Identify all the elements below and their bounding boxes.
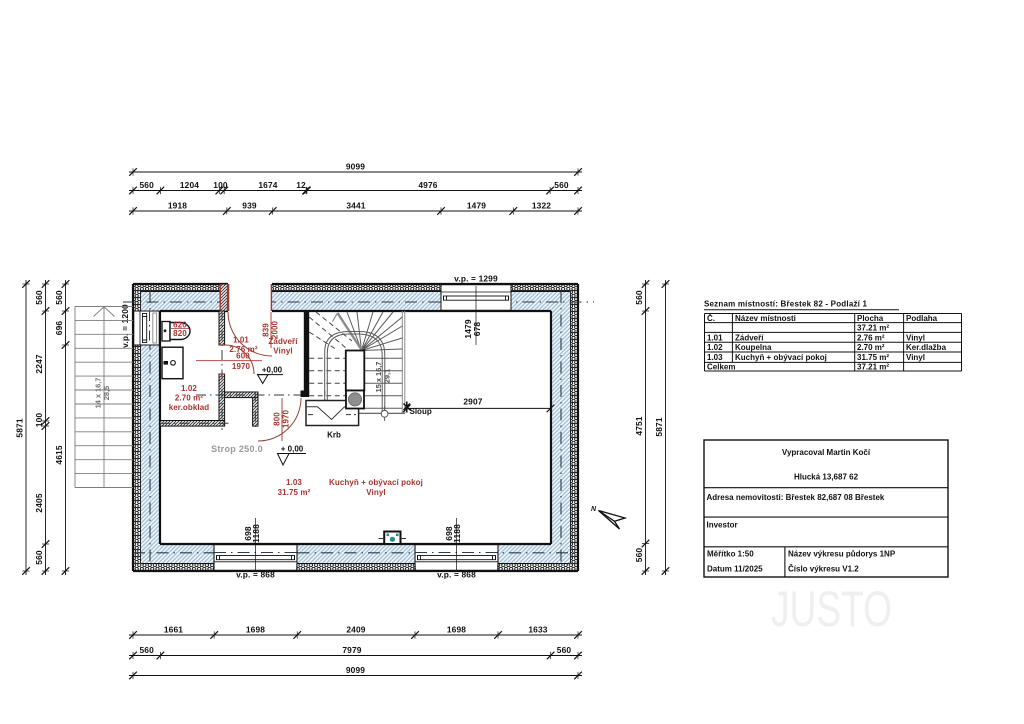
svg-text:1698: 1698 (246, 625, 265, 635)
svg-text:1188: 1188 (251, 524, 261, 543)
svg-text:560: 560 (557, 645, 572, 655)
svg-text:Adresa nemovitosti: Břestek 82: Adresa nemovitosti: Břestek 82,687 08 Bř… (707, 493, 885, 502)
svg-text:678: 678 (472, 322, 482, 337)
svg-text:v.p. = 1299: v.p. = 1299 (454, 274, 498, 284)
svg-text:560: 560 (139, 180, 154, 190)
svg-text:Kuchyň + obývací pokoj: Kuchyň + obývací pokoj (735, 353, 827, 362)
svg-text:7979: 7979 (342, 645, 361, 655)
svg-text:Krb: Krb (327, 431, 341, 440)
svg-text:696: 696 (54, 321, 64, 336)
svg-text:1.01: 1.01 (707, 333, 723, 342)
svg-text:4976: 4976 (418, 180, 437, 190)
svg-text:560: 560 (34, 290, 44, 305)
svg-text:560: 560 (54, 290, 64, 305)
svg-text:JUSTO: JUSTO (771, 581, 892, 637)
svg-text:1.02: 1.02 (707, 343, 723, 352)
svg-text:Ker.dlažba: Ker.dlažba (906, 343, 947, 352)
svg-text:31.75 m²: 31.75 m² (857, 353, 889, 362)
svg-text:2.70 m²: 2.70 m² (857, 343, 885, 352)
svg-text:1479: 1479 (467, 201, 486, 211)
svg-text:2.70 m²: 2.70 m² (175, 394, 204, 403)
svg-text:100: 100 (213, 180, 228, 190)
svg-text:Hlucká 13,687 62: Hlucká 13,687 62 (794, 473, 859, 482)
svg-text:560: 560 (634, 548, 644, 563)
svg-text:800: 800 (273, 412, 282, 426)
svg-text:2409: 2409 (346, 625, 365, 635)
svg-text:v.p. = 1200: v.p. = 1200 (120, 304, 130, 348)
svg-text:1698: 1698 (447, 625, 466, 635)
svg-text:9099: 9099 (346, 665, 365, 675)
svg-text:v.p. = 868: v.p. = 868 (236, 570, 275, 580)
svg-text:Datum 11/2025: Datum 11/2025 (707, 565, 763, 574)
svg-text:560: 560 (34, 550, 44, 565)
svg-text:939: 939 (242, 201, 257, 211)
svg-text:Plocha: Plocha (857, 314, 884, 323)
svg-text:1674: 1674 (258, 180, 277, 190)
svg-text:1970: 1970 (232, 362, 251, 371)
svg-text:1204: 1204 (180, 180, 199, 190)
svg-text:4615: 4615 (54, 445, 64, 464)
svg-text:Zádveří: Zádveří (268, 337, 298, 346)
svg-text:1633: 1633 (528, 625, 547, 635)
svg-text:2.76 m²: 2.76 m² (229, 345, 258, 354)
svg-text:4751: 4751 (634, 416, 644, 435)
svg-text:Strop 250.0: Strop 250.0 (211, 444, 263, 454)
svg-text:ker.obklad: ker.obklad (169, 403, 210, 412)
svg-text:Investor: Investor (707, 521, 738, 530)
svg-text:37.21 m²: 37.21 m² (857, 324, 889, 333)
svg-text:560: 560 (634, 290, 644, 305)
svg-text:2.76 m²: 2.76 m² (857, 333, 885, 342)
svg-text:839: 839 (262, 323, 271, 337)
svg-text:2907: 2907 (463, 397, 482, 407)
svg-text:Koupelna: Koupelna (735, 343, 772, 352)
svg-text:100: 100 (34, 413, 44, 428)
svg-text:+0,00: +0,00 (262, 366, 283, 375)
svg-text:3441: 3441 (346, 201, 365, 211)
svg-text:Celkem: Celkem (707, 362, 735, 371)
svg-text:Kuchyň + obývací pokoj: Kuchyň + obývací pokoj (329, 478, 423, 487)
svg-text:Č.: Č. (707, 314, 715, 323)
svg-text:Měřítko 1:50: Měřítko 1:50 (707, 550, 754, 559)
svg-text:2405: 2405 (34, 493, 44, 512)
svg-text:Vinyl: Vinyl (366, 488, 385, 497)
svg-text:Název výkresu půdorys 1NP: Název výkresu půdorys 1NP (788, 550, 896, 559)
svg-text:2247: 2247 (34, 354, 44, 373)
svg-text:1.02: 1.02 (181, 384, 197, 393)
svg-text:560: 560 (139, 645, 154, 655)
svg-text:5871: 5871 (654, 417, 664, 436)
svg-text:37.21 m²: 37.21 m² (857, 362, 889, 371)
svg-text:9099: 9099 (346, 162, 365, 172)
svg-text:1.03: 1.03 (286, 478, 302, 487)
svg-text:1970: 1970 (282, 409, 291, 428)
svg-text:1.03: 1.03 (707, 353, 723, 362)
svg-text:Vinyl: Vinyl (273, 347, 292, 356)
svg-text:1661: 1661 (164, 625, 183, 635)
svg-text:Zádveří: Zádveří (735, 333, 764, 342)
svg-text:1322: 1322 (532, 201, 551, 211)
svg-text:820: 820 (173, 329, 187, 338)
svg-text:Vinyl: Vinyl (906, 333, 925, 342)
svg-text:28,5: 28,5 (102, 386, 111, 400)
svg-text:Název místnosti: Název místnosti (735, 314, 796, 323)
svg-text:31.75 m²: 31.75 m² (278, 488, 311, 497)
svg-text:1188: 1188 (452, 524, 462, 543)
svg-text:+ 0,00: + 0,00 (281, 445, 304, 454)
svg-text:Seznam místností: Břestek 82 -: Seznam místností: Břestek 82 - Podlaží 1 (704, 300, 868, 309)
svg-text:Vinyl: Vinyl (906, 353, 925, 362)
svg-text:Vypracoval Martin Kočí: Vypracoval Martin Kočí (782, 448, 871, 457)
svg-text:12: 12 (296, 180, 306, 190)
svg-text:5871: 5871 (15, 418, 25, 437)
svg-text:1918: 1918 (168, 201, 187, 211)
svg-text:Číslo výkresu V1.2: Číslo výkresu V1.2 (788, 565, 859, 574)
svg-text:560: 560 (554, 180, 569, 190)
svg-text:29,1: 29,1 (383, 369, 392, 383)
svg-text:v.p. = 868: v.p. = 868 (437, 570, 476, 580)
svg-text:Podlaha: Podlaha (906, 314, 938, 323)
svg-text:1.01: 1.01 (233, 336, 249, 345)
